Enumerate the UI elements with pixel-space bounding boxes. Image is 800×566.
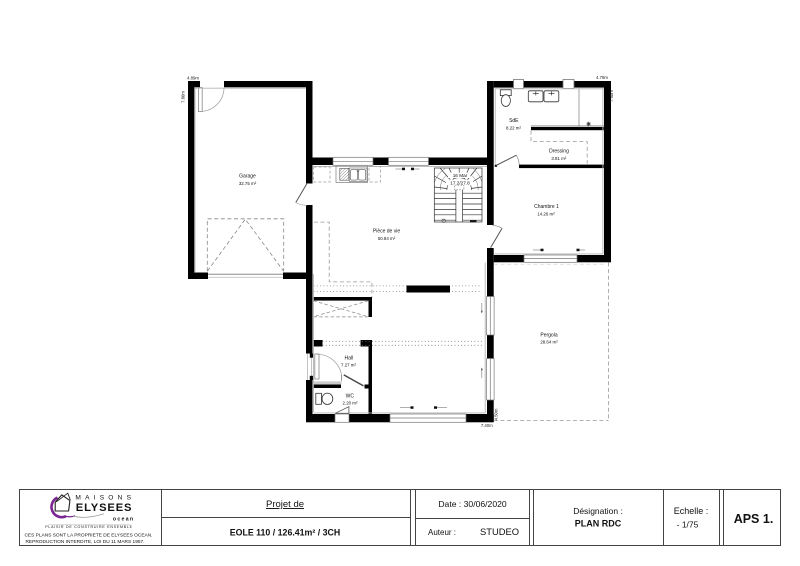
svg-text:APS 1.: APS 1. [734, 512, 774, 526]
svg-text:Chambre 1: Chambre 1 [534, 204, 559, 210]
svg-text:7.40m: 7.40m [481, 423, 493, 428]
svg-text:PLAISIR DE CONSTRUIRE ENSEMBLE: PLAISIR DE CONSTRUIRE ENSEMBLE [45, 525, 133, 529]
svg-text:Date : 30/06/2020: Date : 30/06/2020 [438, 499, 507, 509]
svg-text:Auteur :: Auteur : [428, 528, 456, 537]
svg-text:4.50m: 4.50m [494, 408, 499, 420]
svg-text:28.64 m²: 28.64 m² [540, 339, 558, 344]
svg-text:Dressing: Dressing [549, 149, 569, 155]
svg-text:3.81 m²: 3.81 m² [551, 156, 566, 161]
svg-text:WC: WC [346, 393, 355, 399]
svg-text:Désignation :: Désignation : [573, 506, 623, 516]
svg-text:16 Mar: 16 Mar [453, 173, 468, 178]
svg-text:REPRODUCTION INTERDITE, LOI DU: REPRODUCTION INTERDITE, LOI DU 11 MARS 1… [25, 539, 144, 545]
svg-text:14.26 m²: 14.26 m² [537, 212, 555, 217]
svg-text:7.80m: 7.80m [180, 91, 185, 103]
svg-text:32.75 m²: 32.75 m² [239, 181, 257, 186]
svg-text:7.27 m²: 7.27 m² [341, 362, 356, 367]
svg-text:Pièce de vie: Pièce de vie [373, 228, 400, 234]
svg-text:Garage: Garage [239, 173, 256, 179]
svg-text:- 1/75: - 1/75 [677, 520, 699, 530]
svg-text:8.22 m²: 8.22 m² [506, 126, 521, 131]
svg-text:CES PLANS SONT LA PROPRIETE DE: CES PLANS SONT LA PROPRIETE DE ELYSEES O… [24, 533, 152, 539]
svg-text:Echelle :: Echelle : [674, 506, 709, 516]
svg-text:ocean: ocean [113, 516, 134, 522]
svg-text:50.84 m²: 50.84 m² [378, 236, 396, 241]
svg-text:17.2/27.8: 17.2/27.8 [450, 180, 470, 185]
svg-text:PLAN RDC: PLAN RDC [575, 518, 622, 528]
svg-text:2.20 m²: 2.20 m² [343, 400, 358, 405]
svg-text:MAISONS: MAISONS [75, 494, 135, 501]
svg-text:Pergola: Pergola [540, 332, 557, 338]
svg-text:4.79m: 4.79m [596, 75, 608, 80]
svg-text:Hall: Hall [344, 355, 353, 361]
svg-text:Projet de: Projet de [266, 499, 304, 510]
svg-text:ELYSEES: ELYSEES [76, 502, 133, 514]
svg-text:4.89m: 4.89m [187, 75, 199, 80]
svg-text:SdE: SdE [509, 118, 519, 124]
svg-text:7.50m: 7.50m [609, 90, 614, 102]
svg-text:STUDEO: STUDEO [480, 526, 519, 537]
svg-text:EOLE 110 / 126.41m² / 3CH: EOLE 110 / 126.41m² / 3CH [230, 528, 341, 538]
